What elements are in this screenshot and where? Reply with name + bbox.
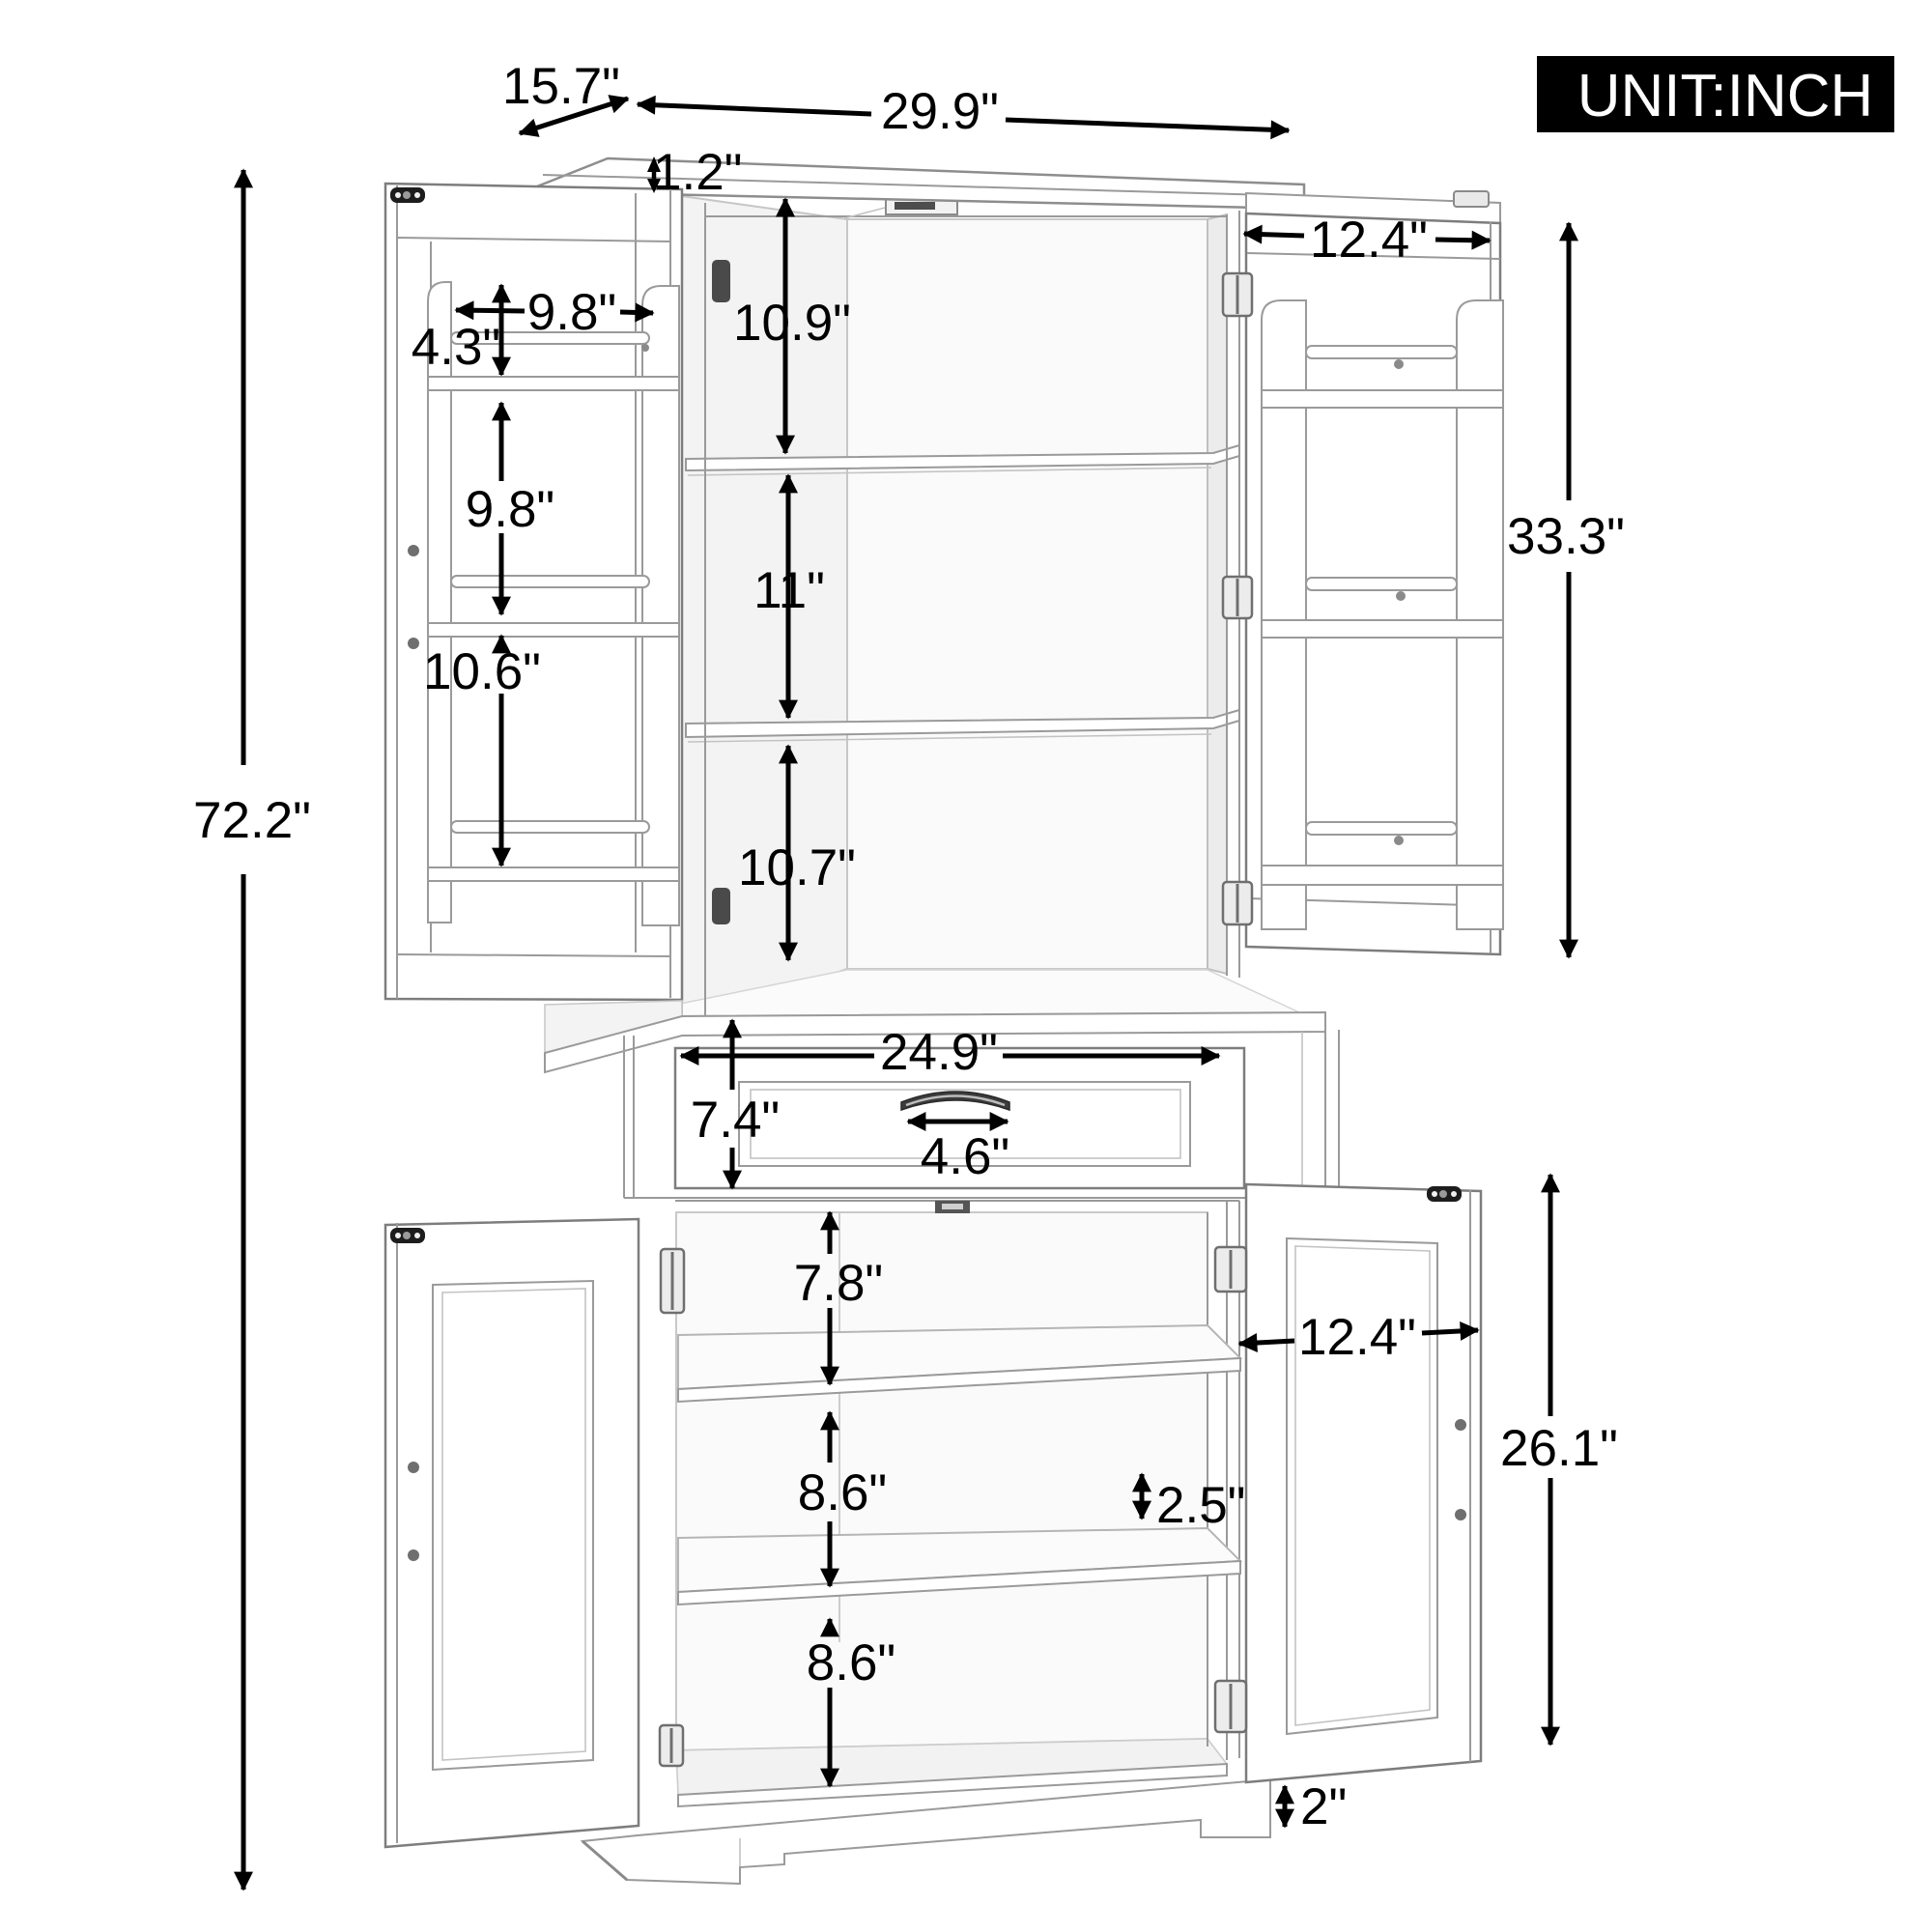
svg-text:8.6": 8.6" — [807, 1634, 896, 1691]
svg-text:1.2": 1.2" — [653, 144, 743, 201]
svg-text:24.9": 24.9" — [880, 1024, 998, 1081]
svg-text:UNIT:INCH: UNIT:INCH — [1577, 63, 1874, 129]
svg-text:4.3": 4.3" — [412, 319, 501, 376]
svg-text:12.4": 12.4" — [1298, 1309, 1416, 1366]
svg-text:12.4": 12.4" — [1310, 212, 1428, 269]
svg-text:7.4": 7.4" — [691, 1092, 781, 1149]
svg-text:11": 11" — [753, 562, 825, 619]
svg-text:26.1": 26.1" — [1500, 1420, 1618, 1477]
svg-text:29.9": 29.9" — [881, 83, 999, 140]
svg-text:7.8": 7.8" — [794, 1255, 884, 1312]
svg-text:4.6": 4.6" — [921, 1128, 1010, 1185]
svg-text:15.7": 15.7" — [502, 58, 620, 115]
svg-text:33.3": 33.3" — [1507, 508, 1625, 565]
svg-text:9.8": 9.8" — [527, 284, 617, 341]
svg-text:8.6": 8.6" — [798, 1464, 888, 1521]
svg-text:2": 2" — [1300, 1778, 1347, 1835]
svg-text:9.8": 9.8" — [466, 481, 555, 538]
svg-text:2.5": 2.5" — [1156, 1477, 1246, 1534]
svg-text:10.6": 10.6" — [423, 643, 541, 700]
svg-text:72.2": 72.2" — [193, 792, 311, 849]
svg-text:10.9": 10.9" — [733, 295, 851, 352]
svg-text:10.7": 10.7" — [738, 839, 856, 896]
